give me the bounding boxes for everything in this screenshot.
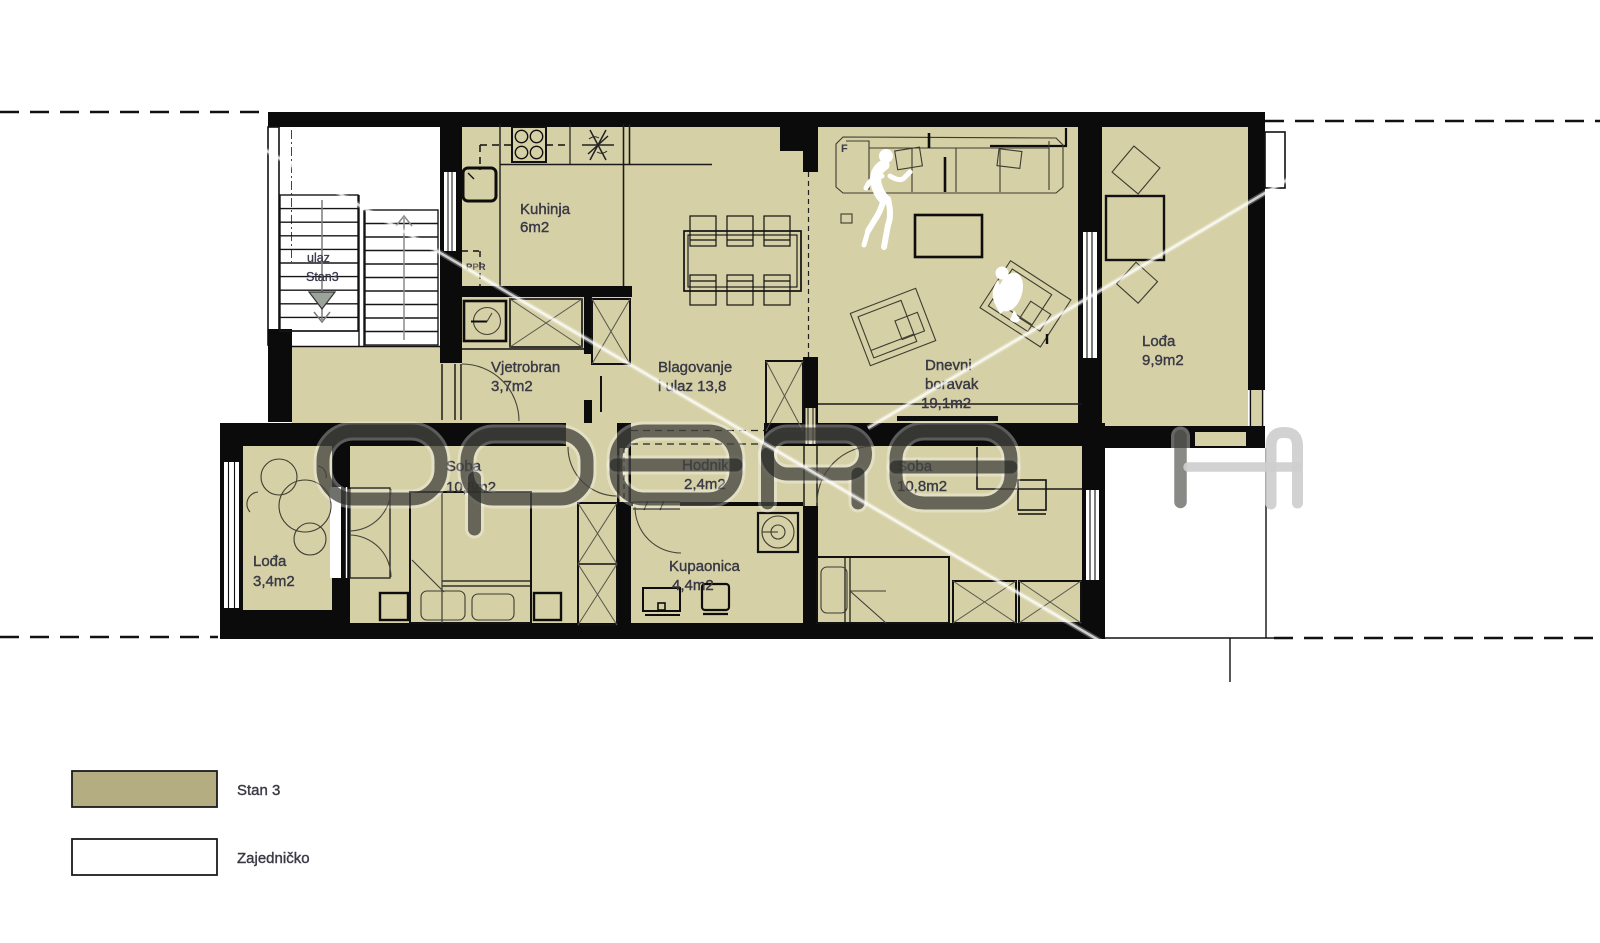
svg-text:9,9m2: 9,9m2 (1142, 352, 1184, 369)
svg-text:Zajedničko: Zajedničko (237, 850, 310, 867)
svg-text:6m2: 6m2 (520, 219, 549, 236)
svg-text:Lođa: Lođa (1142, 333, 1176, 350)
svg-text:Stan 3: Stan 3 (237, 782, 280, 799)
svg-text:Stan3: Stan3 (306, 270, 339, 284)
svg-text:ulaz: ulaz (307, 251, 330, 265)
svg-text:3,7m2: 3,7m2 (491, 378, 533, 395)
svg-text:Vjetrobran: Vjetrobran (491, 359, 560, 376)
svg-text:F: F (841, 143, 848, 155)
svg-text:3,4m2: 3,4m2 (253, 573, 295, 590)
svg-text:Lođa: Lođa (253, 553, 287, 570)
svg-text:19,1m2: 19,1m2 (921, 395, 971, 412)
svg-text:Blagovanje: Blagovanje (658, 359, 732, 376)
svg-text:Kuhinja: Kuhinja (520, 201, 571, 218)
svg-text:Kupaonica: Kupaonica (669, 558, 741, 575)
svg-text:4,4m2: 4,4m2 (672, 577, 714, 594)
